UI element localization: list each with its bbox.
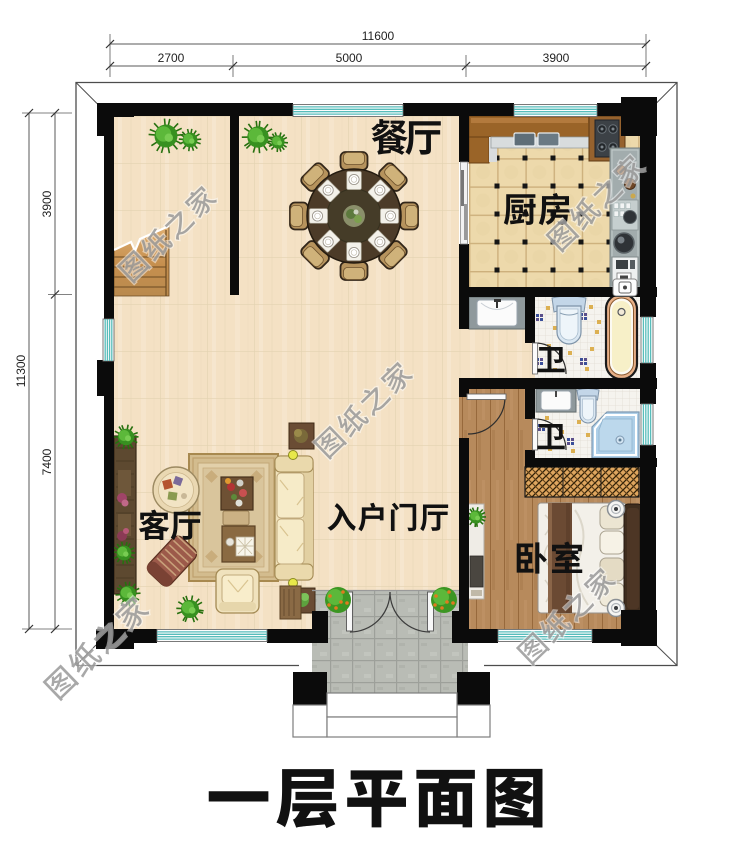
svg-text:3900: 3900 <box>40 190 54 217</box>
svg-text:3900: 3900 <box>543 51 570 65</box>
svg-text:11300: 11300 <box>14 354 28 387</box>
svg-text:7400: 7400 <box>40 448 54 475</box>
svg-text:11600: 11600 <box>362 29 395 43</box>
svg-text:5000: 5000 <box>336 51 363 65</box>
svg-text:2700: 2700 <box>158 51 185 65</box>
